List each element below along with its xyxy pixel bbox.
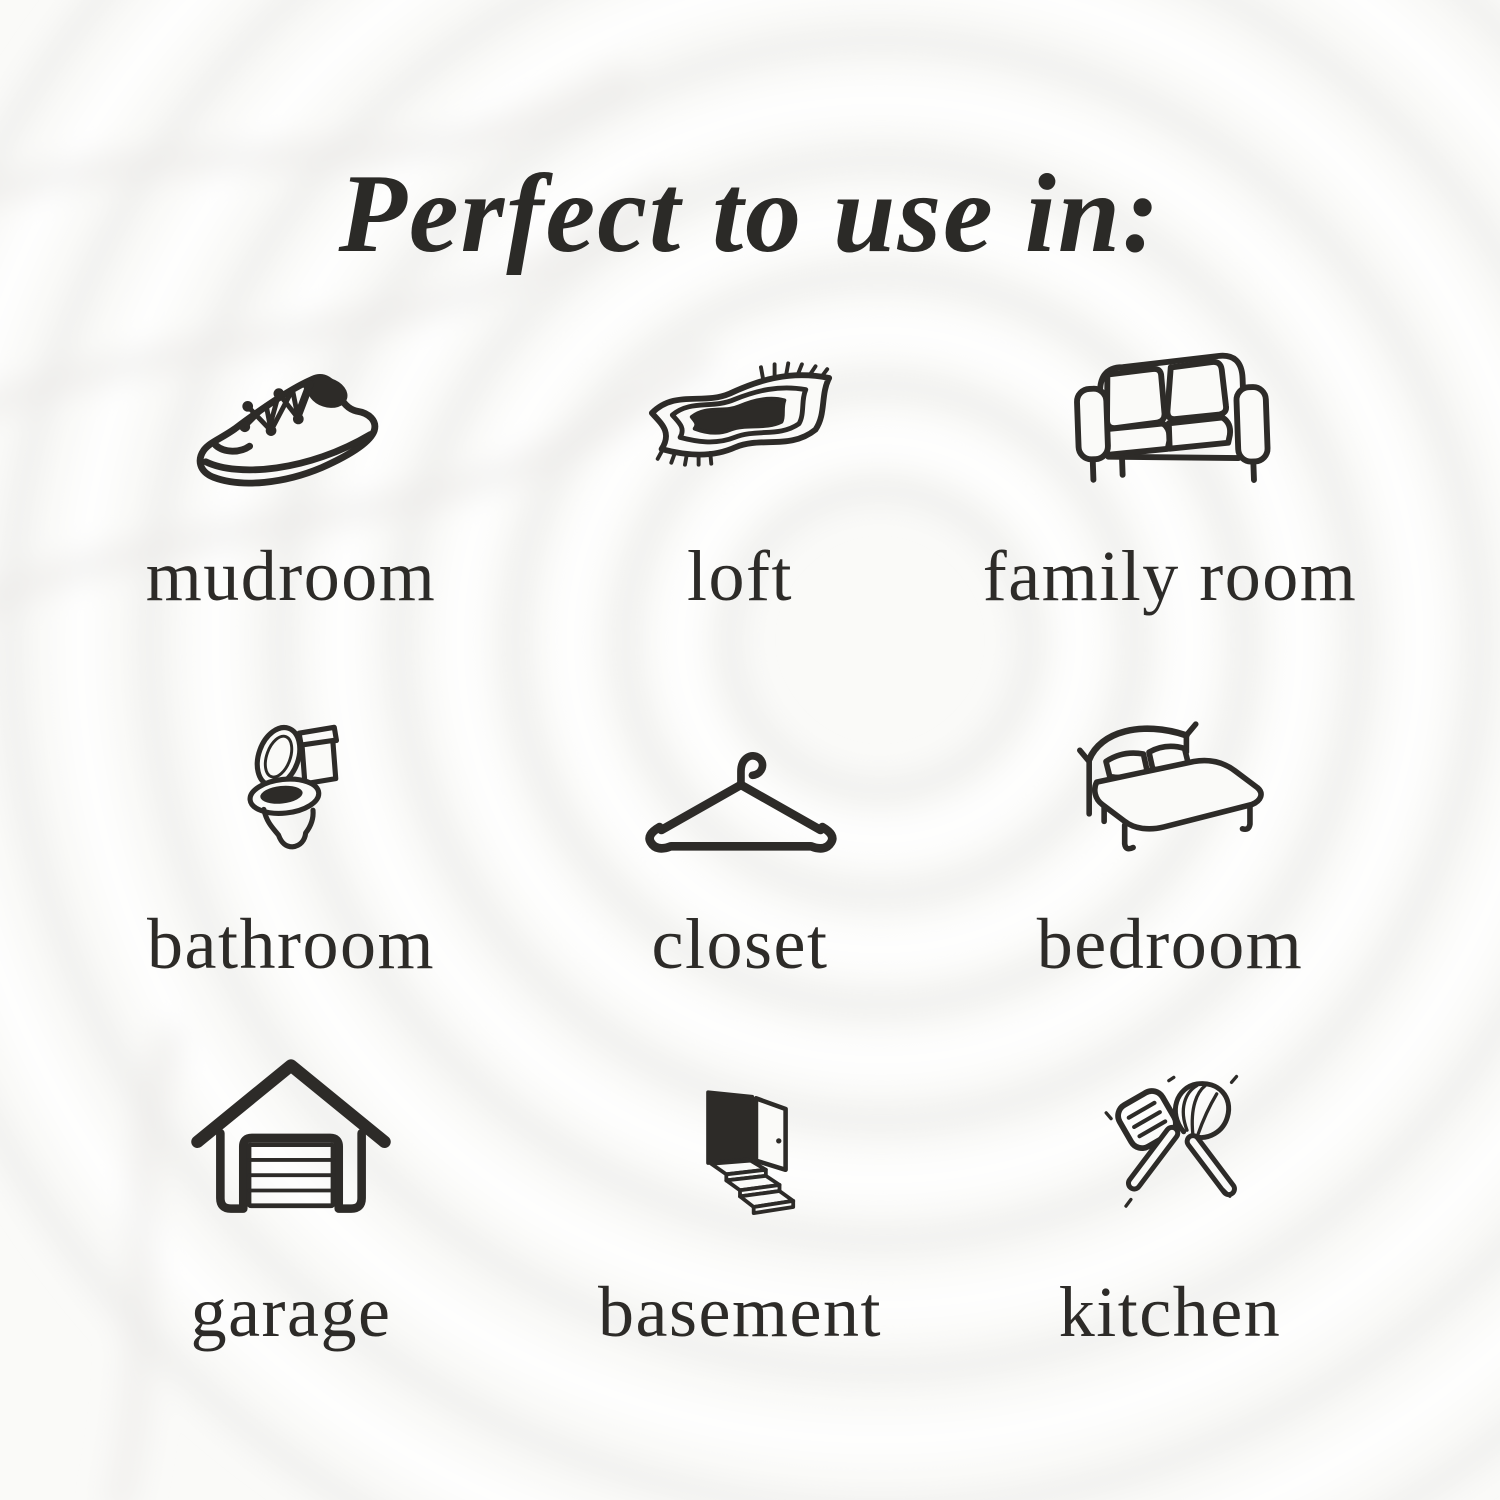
item-label: family room — [983, 540, 1357, 612]
grid-item-basement: basement — [562, 1014, 918, 1350]
grid-item-family-room: family room — [998, 278, 1342, 614]
item-label: basement — [598, 1276, 882, 1348]
item-label: garage — [191, 1276, 392, 1348]
kitchen-utensils-icon — [1088, 1069, 1253, 1226]
hanger-icon — [625, 731, 855, 858]
grid-item-garage: garage — [100, 1014, 482, 1350]
grid-item-bathroom: bathroom — [100, 646, 482, 982]
item-label: mudroom — [146, 540, 436, 612]
grid-item-bedroom: bedroom — [998, 646, 1342, 982]
toilet-icon — [236, 711, 346, 858]
grid-item-kitchen: kitchen — [998, 1014, 1342, 1350]
item-label: closet — [652, 908, 829, 980]
bed-icon — [1063, 694, 1278, 858]
grid-item-loft: loft — [562, 278, 918, 614]
item-label: bedroom — [1037, 908, 1303, 980]
item-label: loft — [687, 540, 793, 612]
sofa-icon — [1058, 333, 1283, 490]
basement-stairs-icon — [664, 1074, 816, 1226]
rug-icon — [638, 339, 843, 490]
garage-icon — [186, 1049, 396, 1226]
grid-item-closet: closet — [562, 646, 918, 982]
grid-item-mudroom: mudroom — [100, 278, 482, 614]
item-label: bathroom — [147, 908, 435, 980]
item-label: kitchen — [1059, 1276, 1281, 1348]
sneaker-icon — [189, 344, 394, 490]
product-infographic: Perfect to use in: mudroom — [0, 0, 1500, 1500]
usage-grid: mudroom loft — [60, 262, 1382, 1366]
